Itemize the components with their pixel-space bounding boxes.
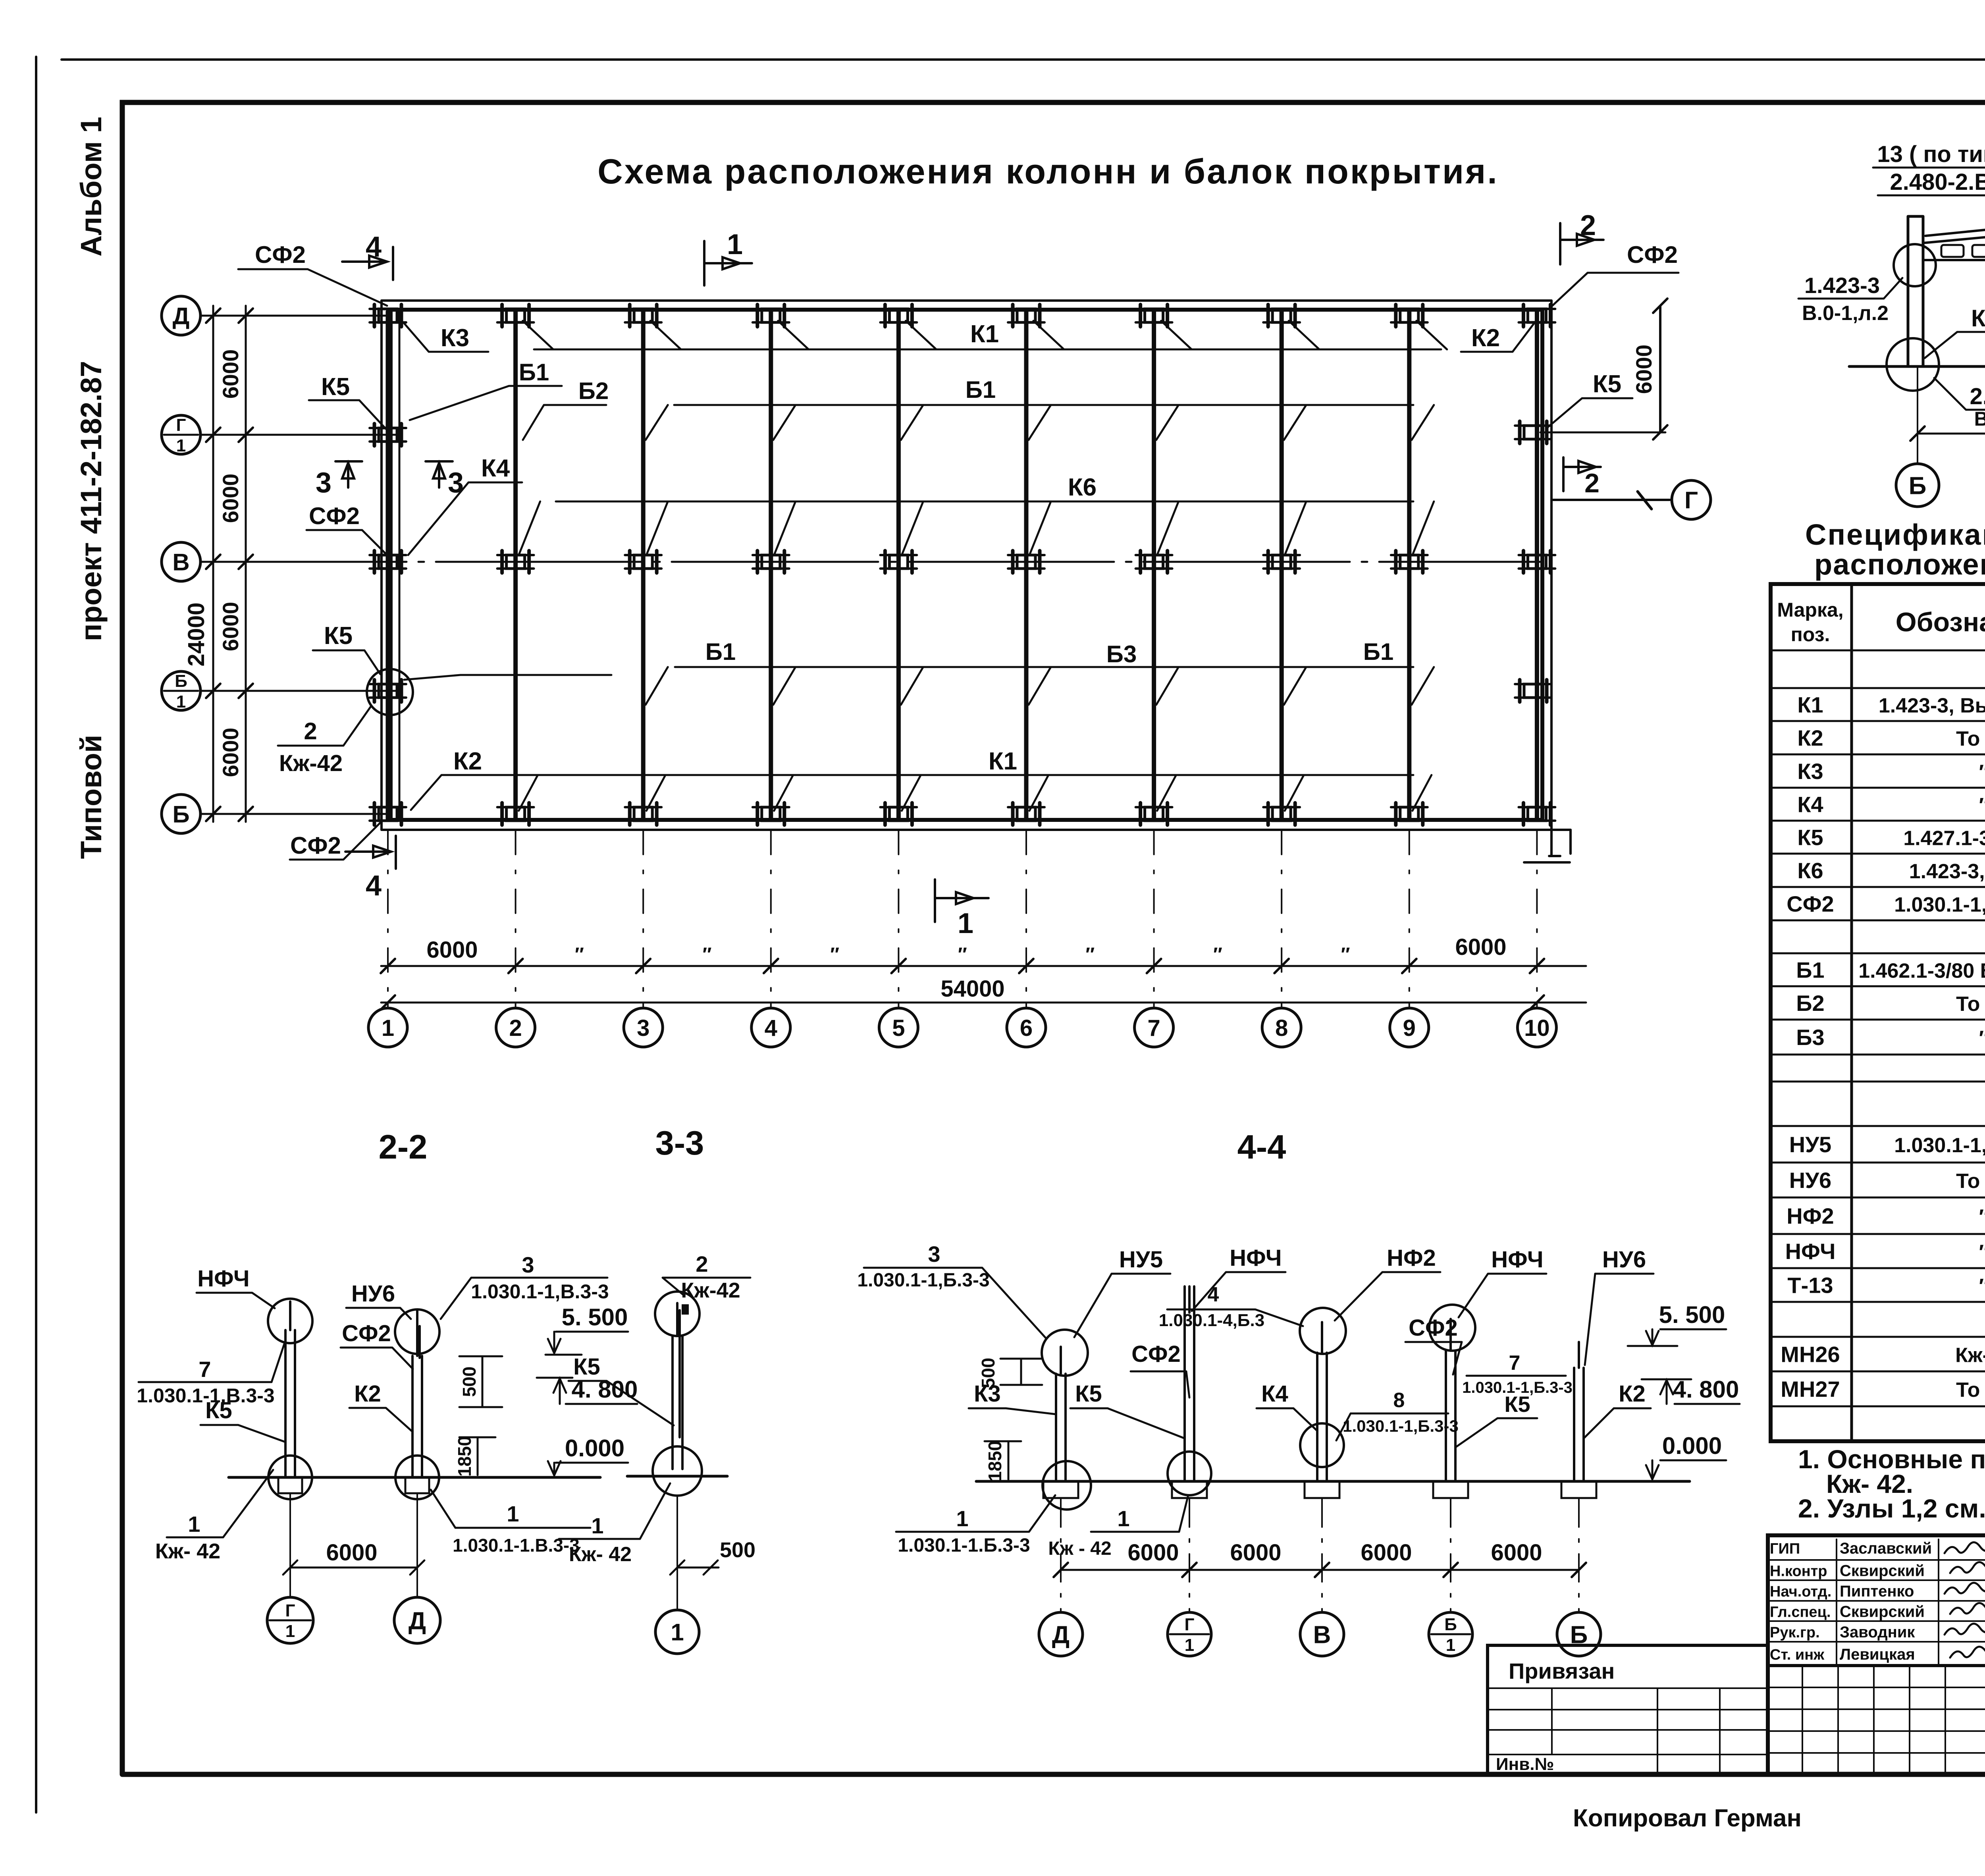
svg-text:″: ″ (1213, 944, 1222, 965)
svg-text:НФ2: НФ2 (1786, 1203, 1834, 1228)
svg-text:Спецификация элементов к: Спецификация элементов к схеме (1805, 518, 1985, 551)
svg-text:К4: К4 (1261, 1381, 1288, 1407)
svg-text:″: ″ (703, 944, 712, 965)
svg-text:″: ″ (1979, 1275, 1985, 1298)
svg-text:Г: Г (1185, 1615, 1195, 1634)
svg-text:НУ5: НУ5 (1119, 1247, 1163, 1273)
svg-text:8: 8 (1393, 1389, 1405, 1412)
svg-text:К6: К6 (1797, 858, 1823, 883)
svg-text:6000: 6000 (1491, 1540, 1542, 1566)
svg-text:Г: Г (176, 415, 186, 435)
svg-text:Т-13: Т-13 (1787, 1273, 1833, 1298)
svg-text:1: 1 (671, 1619, 684, 1646)
svg-text:1: 1 (382, 1015, 394, 1041)
svg-text:Обозначение: Обозначение (1896, 607, 1985, 637)
svg-text:″: ″ (958, 944, 967, 965)
svg-text:К2: К2 (453, 748, 482, 775)
svg-text:1.030.1-1, Вып 4-2: 1.030.1-1, Вып 4-2 (1894, 893, 1985, 916)
svg-text:В: В (1313, 1621, 1331, 1648)
svg-text:54000: 54000 (940, 976, 1004, 1002)
svg-text:НФ2: НФ2 (1387, 1245, 1436, 1271)
svg-text:НУ6: НУ6 (351, 1281, 395, 1307)
svg-text:Сквирский: Сквирский (1840, 1562, 1925, 1580)
svg-text:Д: Д (409, 1607, 426, 1635)
svg-text:К2: К2 (1797, 725, 1823, 750)
svg-text:То же: То же (1956, 727, 1985, 750)
svg-text:К2: К2 (354, 1381, 381, 1407)
svg-text:Б1: Б1 (966, 376, 996, 403)
svg-text:Д: Д (1052, 1621, 1070, 1648)
svg-text:″: ″ (830, 944, 839, 965)
svg-text:10: 10 (1524, 1015, 1550, 1041)
svg-text:3-3: 3-3 (655, 1124, 704, 1162)
svg-text:6000: 6000 (426, 937, 478, 963)
svg-text:Б3: Б3 (1106, 641, 1137, 667)
svg-text:6000: 6000 (218, 602, 243, 652)
svg-text:1: 1 (1446, 1635, 1455, 1655)
svg-text:1.030.1-1,В.3-3: 1.030.1-1,В.3-3 (471, 1280, 609, 1303)
svg-text:3: 3 (316, 467, 331, 499)
svg-text:1.423-3: 1.423-3 (1804, 273, 1880, 298)
svg-text:К5: К5 (1593, 370, 1621, 398)
svg-text:К4: К4 (481, 455, 510, 482)
svg-text:К3: К3 (974, 1381, 1001, 1407)
svg-text:Б: Б (1444, 1615, 1457, 1634)
svg-text:Кж- 42: Кж- 42 (569, 1543, 632, 1566)
svg-text:7: 7 (198, 1357, 211, 1382)
svg-text:9: 9 (1403, 1015, 1416, 1041)
svg-text:6000: 6000 (218, 474, 243, 523)
svg-text:1.462.1-3/80 Вып.1,КЖ-16: 1.462.1-3/80 Вып.1,КЖ-16 (1858, 960, 1985, 983)
svg-text:СФ2: СФ2 (1786, 891, 1834, 916)
svg-text:4: 4 (1208, 1283, 1219, 1306)
svg-text:К2: К2 (1471, 324, 1500, 352)
svg-text:К5: К5 (205, 1398, 232, 1423)
svg-text:Б2: Б2 (1796, 991, 1824, 1016)
svg-text:Ст. инж: Ст. инж (1770, 1647, 1825, 1663)
svg-text:Н.контр: Н.контр (1770, 1563, 1827, 1580)
svg-text:Нач.отд.: Нач.отд. (1770, 1583, 1831, 1600)
svg-text:1: 1 (1185, 1635, 1194, 1655)
svg-text:НУ6: НУ6 (1602, 1247, 1646, 1273)
svg-text:Кж-42: Кж-42 (681, 1278, 740, 1302)
svg-text:6: 6 (1020, 1015, 1033, 1041)
svg-text:6000: 6000 (1230, 1540, 1281, 1566)
svg-text:1.030.1-1, Вып.4-1: 1.030.1-1, Вып.4-1 (1894, 1134, 1985, 1157)
svg-text:2-2: 2-2 (379, 1128, 428, 1166)
svg-text:Пиптенко: Пиптенко (1840, 1583, 1914, 1600)
svg-text:1.030.1-1.Б.3-3: 1.030.1-1.Б.3-3 (898, 1535, 1030, 1556)
svg-text:К5: К5 (321, 373, 350, 401)
svg-text:НУ5: НУ5 (1789, 1132, 1831, 1157)
svg-text:Б1: Б1 (1363, 638, 1394, 665)
svg-text:1: 1 (188, 1512, 200, 1537)
svg-text:6000: 6000 (218, 349, 243, 399)
svg-text:6000: 6000 (1631, 345, 1656, 394)
svg-text:Кж-42: Кж-42 (279, 750, 343, 776)
svg-text:Заславский: Заславский (1840, 1540, 1932, 1557)
svg-text:Б: Б (175, 671, 187, 691)
svg-text:″: ″ (1085, 944, 1095, 965)
svg-text:6000: 6000 (326, 1540, 377, 1566)
svg-text:Заводник: Заводник (1840, 1623, 1915, 1641)
svg-text:Кж-58: Кж-58 (1955, 1344, 1985, 1367)
svg-text:расположения колонн и балок: расположения колонн и балок покрытия. (1814, 548, 1985, 581)
svg-text:″: ″ (1979, 1241, 1985, 1264)
svg-text:Б1: Б1 (1796, 958, 1824, 983)
svg-text:2: 2 (696, 1251, 708, 1276)
svg-text:Б3: Б3 (1796, 1025, 1824, 1050)
svg-text:К5: К5 (573, 1354, 600, 1380)
svg-text:Кж- 42: Кж- 42 (155, 1539, 220, 1563)
svg-text:500: 500 (459, 1367, 480, 1397)
svg-text:6000: 6000 (218, 728, 243, 777)
svg-text:К5: К5 (324, 622, 353, 650)
svg-text:Типовой: Типовой (75, 735, 108, 859)
svg-text:К5: К5 (1504, 1392, 1530, 1417)
svg-text:8: 8 (1275, 1015, 1288, 1041)
svg-text:0.000: 0.000 (1662, 1433, 1722, 1459)
svg-text:″: ″ (1979, 1027, 1985, 1050)
svg-text:К3: К3 (441, 324, 469, 352)
svg-text:То же: То же (1956, 1379, 1985, 1402)
svg-text:НФЧ: НФЧ (1491, 1247, 1543, 1273)
svg-text:Марка,: Марка, (1777, 599, 1843, 621)
svg-text:3: 3 (928, 1242, 940, 1267)
svg-text:″: ″ (1979, 761, 1985, 784)
svg-text:ГИП: ГИП (1770, 1541, 1800, 1557)
svg-text:К4: К4 (1797, 792, 1823, 817)
svg-text:СФ2: СФ2 (342, 1321, 391, 1346)
svg-text:Б2: Б2 (578, 378, 609, 404)
svg-text:3: 3 (637, 1015, 649, 1041)
svg-text:1: 1 (176, 436, 186, 455)
svg-text:То же: То же (1956, 1170, 1985, 1193)
svg-text:Левицкая: Левицкая (1840, 1646, 1915, 1663)
svg-text:СФ2: СФ2 (309, 503, 360, 529)
svg-text:К1: К1 (970, 320, 999, 348)
svg-text:″: ″ (1979, 1205, 1985, 1228)
svg-text:К3: К3 (1797, 759, 1823, 784)
svg-text:2.420-1: 2.420-1 (1970, 384, 1985, 409)
svg-text:СФ2: СФ2 (1409, 1315, 1458, 1341)
svg-text:7: 7 (1509, 1352, 1521, 1375)
svg-text:24000: 24000 (183, 602, 209, 666)
svg-text:1: 1 (958, 908, 973, 939)
svg-text:6000: 6000 (1361, 1540, 1412, 1566)
svg-text:0.000: 0.000 (565, 1435, 624, 1461)
svg-text:1.423-3, Вып. 1: 1.423-3, Вып. 1 (1909, 860, 1985, 883)
svg-text:3: 3 (448, 467, 464, 499)
svg-text:НУ6: НУ6 (1789, 1168, 1831, 1193)
svg-text:СФ2: СФ2 (290, 832, 341, 859)
svg-text:6000: 6000 (1455, 934, 1506, 960)
svg-text:К2: К2 (1619, 1381, 1646, 1407)
svg-text:1.427.1-3, Вып.1: 1.427.1-3, Вып.1 (1903, 827, 1985, 850)
svg-text:Д: Д (173, 303, 190, 330)
svg-text:Альбом 1: Альбом 1 (75, 117, 108, 256)
svg-text:СФ2: СФ2 (1131, 1341, 1181, 1367)
svg-text:МН27: МН27 (1781, 1377, 1840, 1402)
svg-text:13 ( по типу): 13 ( по типу) (1877, 141, 1985, 167)
svg-text:Б: Б (1909, 472, 1927, 499)
svg-text:Привязан: Привязан (1509, 1658, 1615, 1683)
svg-text:Схема расположения колонн и: Схема расположения колонн и балок покрыт… (597, 152, 1499, 191)
svg-text:поз.: поз. (1791, 623, 1830, 646)
svg-text:В.0-1,л.2: В.0-1,л.2 (1802, 302, 1889, 325)
svg-text:7: 7 (1147, 1015, 1160, 1041)
svg-text:1: 1 (591, 1513, 603, 1538)
svg-text:1.030.1-1,Б.3-3: 1.030.1-1,Б.3-3 (857, 1270, 989, 1291)
svg-text:″: ″ (575, 944, 584, 965)
svg-text:1: 1 (507, 1501, 519, 1526)
svg-text:проект 411-2-182.87: проект 411-2-182.87 (75, 361, 108, 641)
svg-text:5. 500: 5. 500 (562, 1304, 628, 1330)
svg-text:К1: К1 (1971, 305, 1985, 332)
svg-text:К1: К1 (989, 748, 1017, 775)
svg-text:Копировал Герман: Копировал Герман (1573, 1805, 1802, 1832)
svg-text:1.030.1-4,Б.3: 1.030.1-4,Б.3 (1159, 1311, 1264, 1330)
svg-text:2. Узлы 1,2 см. лист Кж-42: 2. Узлы 1,2 см. лист Кж-42. (1798, 1494, 1985, 1523)
svg-text:Б: Б (172, 801, 189, 828)
svg-text:МН26: МН26 (1781, 1342, 1840, 1367)
svg-text:4-4: 4-4 (1237, 1128, 1286, 1166)
svg-text:1.030.1-1,Б.3-3: 1.030.1-1,Б.3-3 (1343, 1417, 1459, 1435)
svg-text:Кж - 42: Кж - 42 (1048, 1538, 1111, 1559)
svg-text:2: 2 (1584, 468, 1600, 498)
svg-text:2.480-2.В.2: 2.480-2.В.2 (1890, 169, 1985, 195)
svg-text:НФЧ: НФЧ (1230, 1245, 1282, 1271)
svg-text:То же: То же (1956, 993, 1985, 1016)
svg-text:Б1: Б1 (519, 359, 549, 386)
svg-text:1850: 1850 (985, 1441, 1005, 1481)
svg-text:500: 500 (720, 1538, 755, 1562)
svg-text:СФ2: СФ2 (255, 241, 306, 268)
svg-text:К5: К5 (1797, 825, 1823, 850)
svg-text:Г: Г (1684, 487, 1698, 514)
svg-text:НФЧ: НФЧ (197, 1266, 249, 1292)
svg-text:Г: Г (285, 1601, 295, 1620)
svg-text:1.423-3, Вып.1,КЖ-45: 1.423-3, Вып.1,КЖ-45 (1879, 694, 1985, 717)
svg-text:4: 4 (765, 1015, 777, 1041)
svg-text:К6: К6 (1068, 474, 1097, 501)
svg-text:Сквирский: Сквирский (1840, 1603, 1925, 1621)
svg-text:6000: 6000 (1127, 1540, 1179, 1566)
svg-text:4: 4 (366, 870, 382, 902)
svg-text:1: 1 (1117, 1506, 1129, 1531)
svg-text:5: 5 (892, 1015, 905, 1041)
svg-text:К1: К1 (1797, 692, 1823, 717)
svg-text:Гл.спец.: Гл.спец. (1770, 1604, 1831, 1621)
svg-text:1: 1 (176, 692, 186, 711)
svg-text:1: 1 (285, 1621, 295, 1641)
svg-text:СФ2: СФ2 (1627, 241, 1678, 268)
svg-text:1: 1 (956, 1506, 968, 1531)
svg-text:1: 1 (727, 229, 743, 260)
svg-text:1850: 1850 (454, 1436, 475, 1477)
svg-text:НФЧ: НФЧ (1785, 1239, 1836, 1264)
svg-text:К5: К5 (1075, 1381, 1102, 1407)
svg-text:В: В (172, 549, 189, 576)
svg-text:Рук.гр.: Рук.гр. (1770, 1624, 1820, 1641)
svg-text:Вып.1: Вып.1 (1974, 408, 1985, 430)
svg-text:3: 3 (522, 1252, 534, 1277)
svg-text:2: 2 (509, 1015, 522, 1041)
svg-text:5. 500: 5. 500 (1659, 1301, 1725, 1328)
svg-text:Инв.№: Инв.№ (1496, 1755, 1554, 1774)
svg-text:Б1: Б1 (705, 638, 736, 665)
svg-text:2: 2 (304, 718, 317, 744)
svg-text:″: ″ (1341, 944, 1350, 965)
svg-text:″: ″ (1979, 794, 1985, 817)
